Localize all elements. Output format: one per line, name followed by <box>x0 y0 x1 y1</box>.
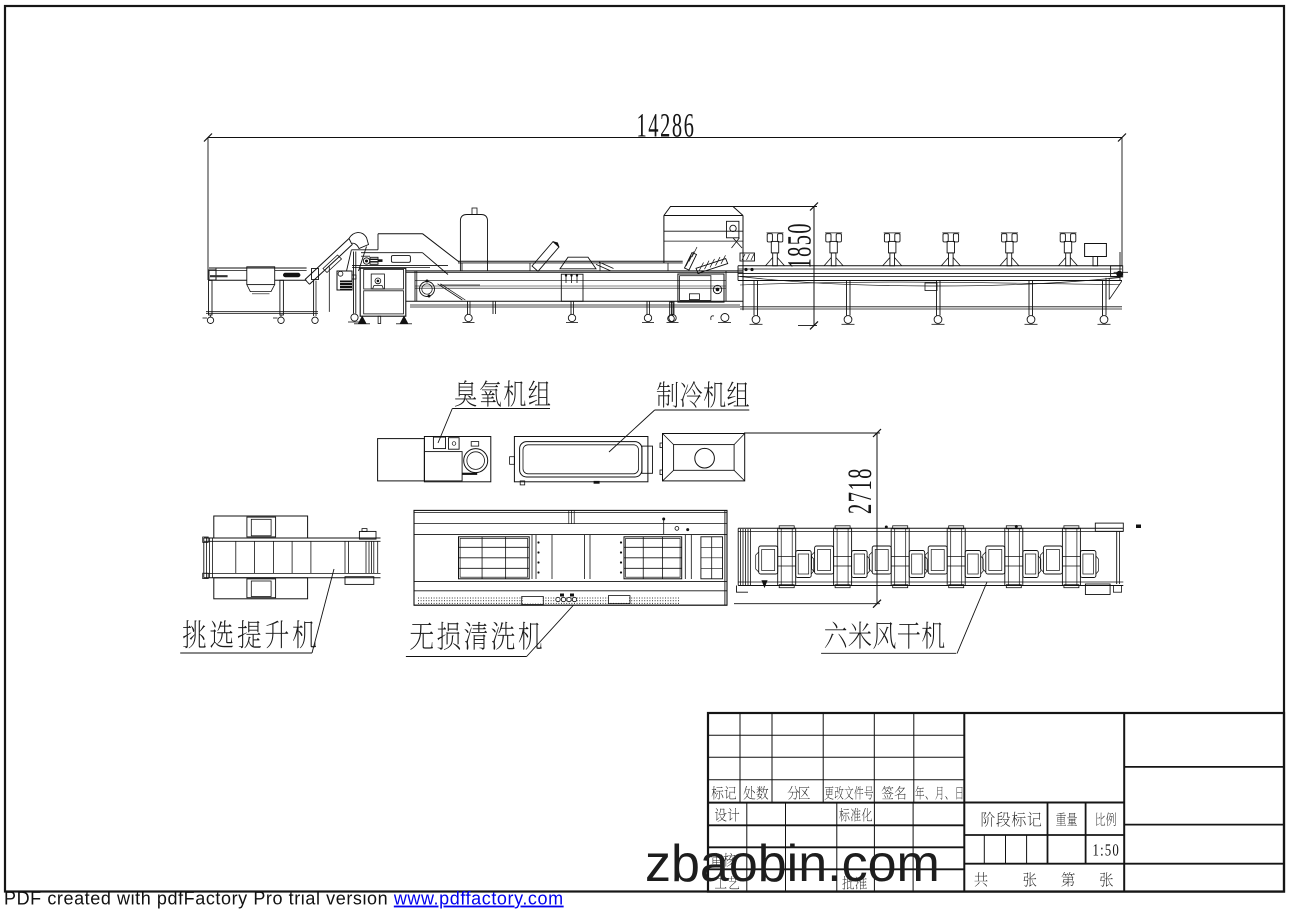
svg-text:PDF created with pdfFactory Pr: PDF created with pdfFactory Pro trial ve… <box>4 889 564 909</box>
svg-text:zbaobin.com: zbaobin.com <box>645 835 940 893</box>
